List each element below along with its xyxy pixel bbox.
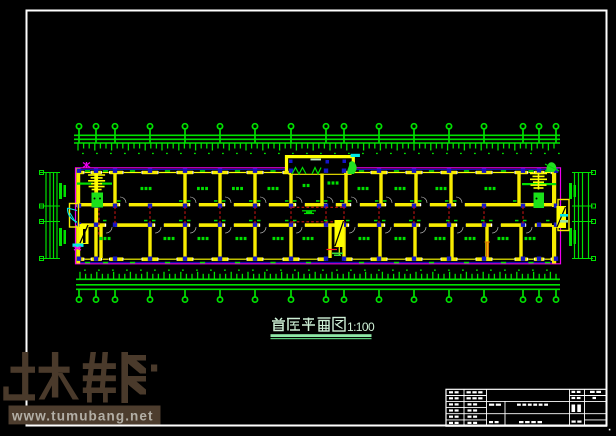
svg-text:www.tumubang.net: www.tumubang.net — [11, 409, 154, 424]
svg-text:1:100: 1:100 — [347, 320, 375, 334]
